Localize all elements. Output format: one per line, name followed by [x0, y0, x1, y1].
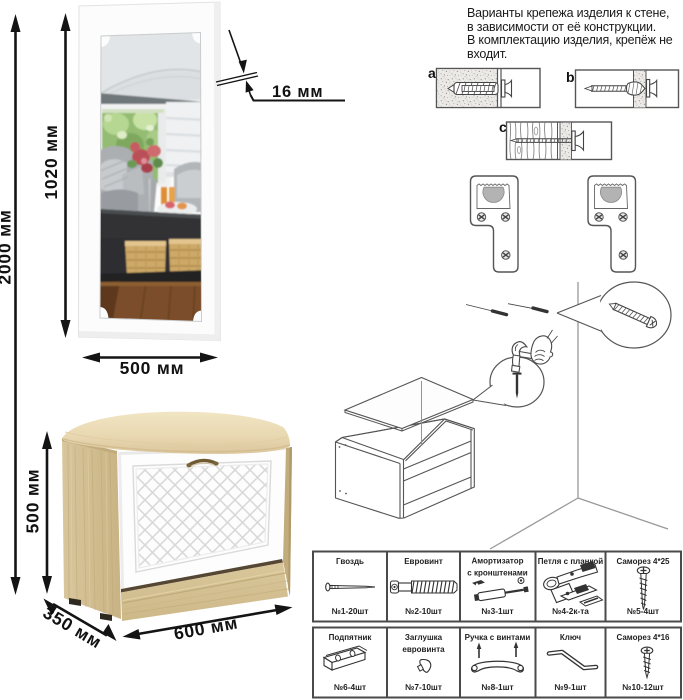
svg-text:Заглушка: Заглушка [405, 633, 443, 642]
svg-text:Саморез 4*16: Саморез 4*16 [616, 633, 670, 642]
svg-text:Подпятник: Подпятник [329, 633, 373, 642]
svg-text:№2-10шт: №2-10шт [405, 606, 442, 616]
svg-text:1020 мм: 1020 мм [41, 124, 61, 199]
svg-text:a: a [428, 65, 436, 81]
svg-text:16 мм: 16 мм [272, 83, 323, 101]
svg-text:Амортизатор: Амортизатор [472, 557, 524, 566]
svg-text:№8-1шт: №8-1шт [481, 682, 513, 692]
svg-text:№9-1шт: №9-1шт [554, 682, 586, 692]
svg-text:Ручка с винтами: Ручка с винтами [465, 633, 531, 642]
svg-text:№4-2к-та: №4-2к-та [552, 606, 589, 616]
svg-text:Ключ: Ключ [560, 633, 581, 642]
svg-text:500 мм: 500 мм [23, 469, 43, 534]
svg-text:№10-12шт: №10-12шт [622, 682, 663, 692]
svg-text:2000 мм: 2000 мм [0, 209, 15, 284]
svg-text:Саморез 4*25: Саморез 4*25 [616, 557, 670, 566]
svg-text:500 мм: 500 мм [120, 358, 185, 378]
svg-text:с кронштенами: с кронштенами [467, 569, 528, 578]
svg-text:№1-20шт: №1-20шт [332, 606, 369, 616]
svg-text:Евровинт: Евровинт [404, 557, 443, 566]
svg-text:евровинта: евровинта [402, 645, 445, 654]
svg-text:b: b [566, 69, 575, 85]
svg-text:№7-10шт: №7-10шт [405, 682, 442, 692]
svg-text:№6-4шт: №6-4шт [334, 682, 366, 692]
svg-text:600 мм: 600 мм [172, 612, 239, 643]
svg-text:Гвоздь: Гвоздь [336, 557, 364, 566]
svg-text:№3-1шт: №3-1шт [481, 606, 513, 616]
svg-text:c: c [499, 119, 507, 135]
svg-text:350 мм: 350 мм [40, 602, 106, 652]
svg-text:№5-4шт: №5-4шт [627, 606, 659, 616]
